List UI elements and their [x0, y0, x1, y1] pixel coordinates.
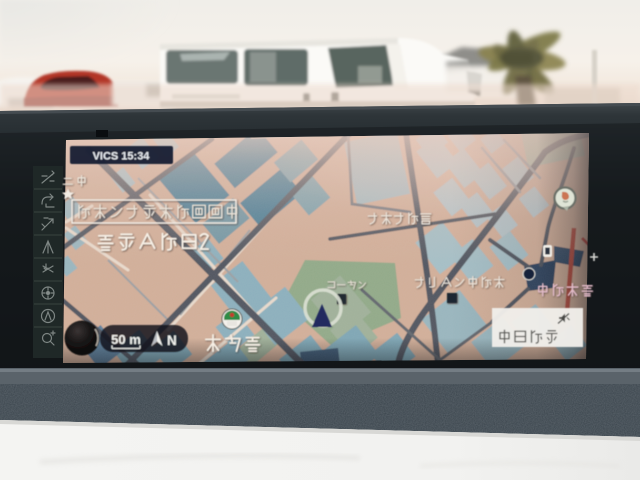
svg-text:N: N — [167, 333, 177, 348]
svg-text:VICS 15:34: VICS 15:34 — [93, 151, 151, 163]
svg-text:50 m: 50 m — [111, 332, 141, 347]
